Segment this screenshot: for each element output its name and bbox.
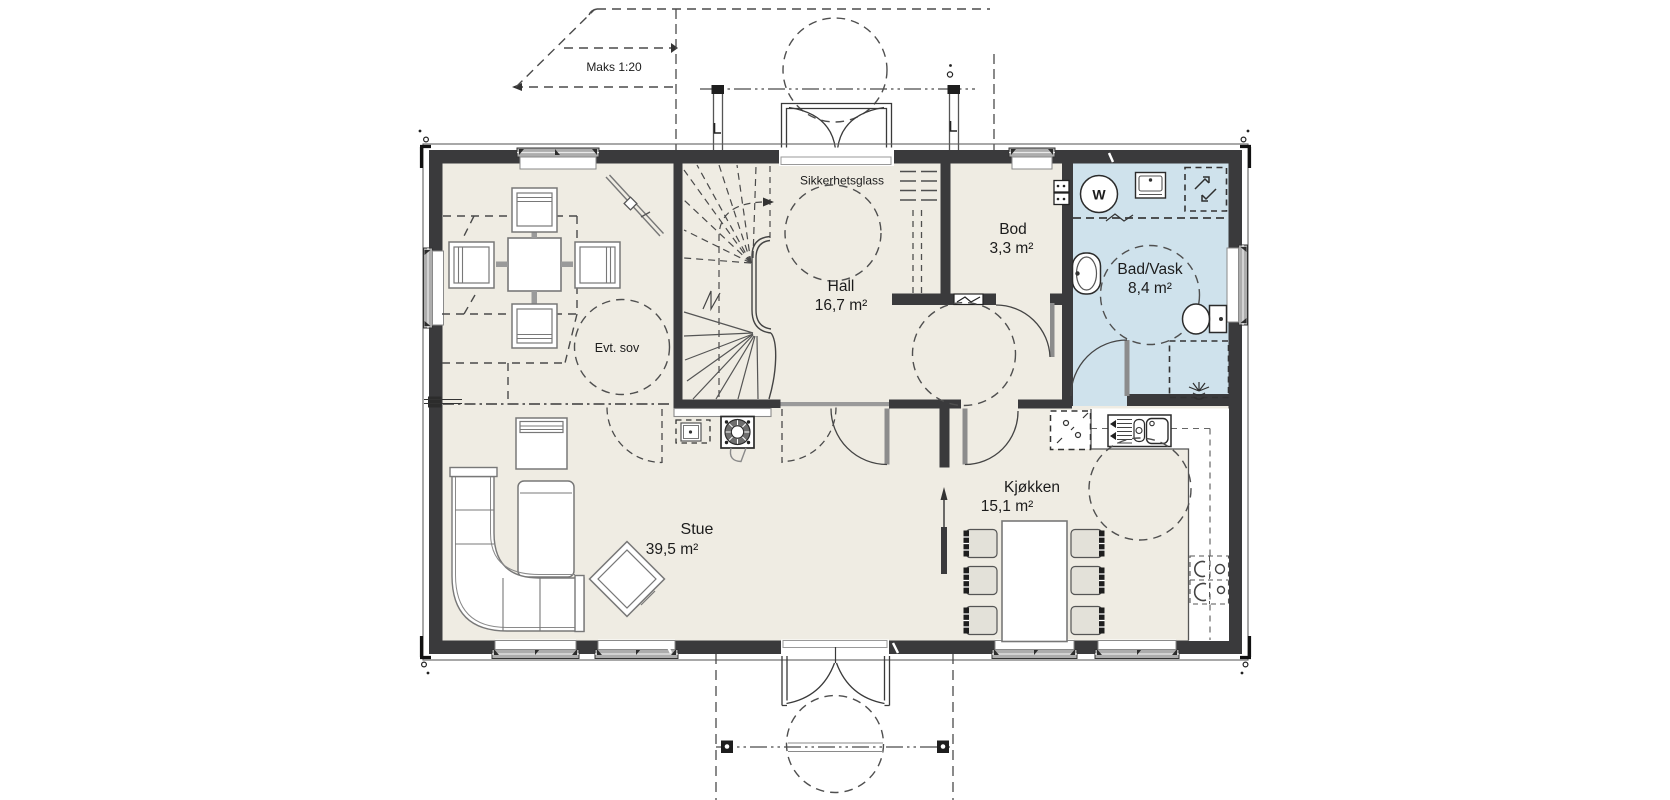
svg-text:Bod: Bod	[999, 221, 1027, 238]
svg-text:Bad/Vask: Bad/Vask	[1117, 261, 1182, 278]
svg-text:Evt. sov: Evt. sov	[595, 341, 640, 355]
svg-text:15,1 m²: 15,1 m²	[981, 498, 1034, 515]
svg-text:3,3 m²: 3,3 m²	[990, 240, 1034, 257]
svg-text:Kjøkken: Kjøkken	[1004, 479, 1060, 496]
svg-text:Maks 1:20: Maks 1:20	[586, 60, 642, 74]
svg-text:Stue: Stue	[681, 521, 714, 538]
svg-text:16,7 m²: 16,7 m²	[815, 297, 868, 314]
svg-text:W: W	[1092, 187, 1106, 203]
svg-text:39,5 m²: 39,5 m²	[646, 541, 699, 558]
svg-text:Hall: Hall	[828, 278, 855, 295]
svg-text:8,4 m²: 8,4 m²	[1128, 280, 1172, 297]
